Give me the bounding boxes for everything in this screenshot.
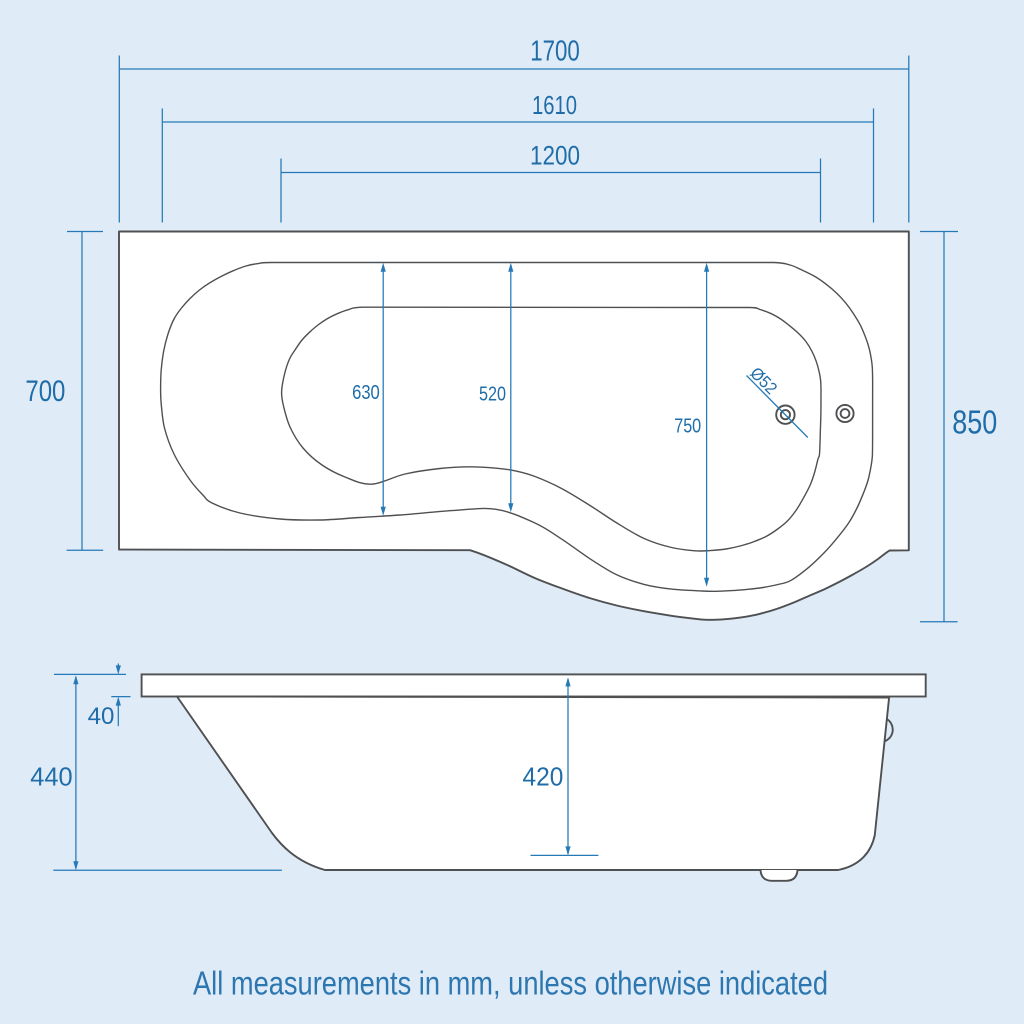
svg-text:1610: 1610 bbox=[532, 90, 577, 120]
svg-text:420: 420 bbox=[523, 762, 564, 792]
svg-text:40: 40 bbox=[88, 703, 115, 730]
svg-text:850: 850 bbox=[952, 403, 997, 440]
svg-text:All measurements in mm, unless: All measurements in mm, unless otherwise… bbox=[193, 965, 828, 1002]
svg-text:1700: 1700 bbox=[530, 36, 580, 68]
svg-text:750: 750 bbox=[674, 416, 701, 438]
svg-text:630: 630 bbox=[352, 382, 380, 404]
svg-text:440: 440 bbox=[30, 762, 72, 792]
svg-text:700: 700 bbox=[25, 375, 65, 408]
svg-text:520: 520 bbox=[479, 384, 506, 406]
svg-text:1200: 1200 bbox=[530, 141, 580, 171]
